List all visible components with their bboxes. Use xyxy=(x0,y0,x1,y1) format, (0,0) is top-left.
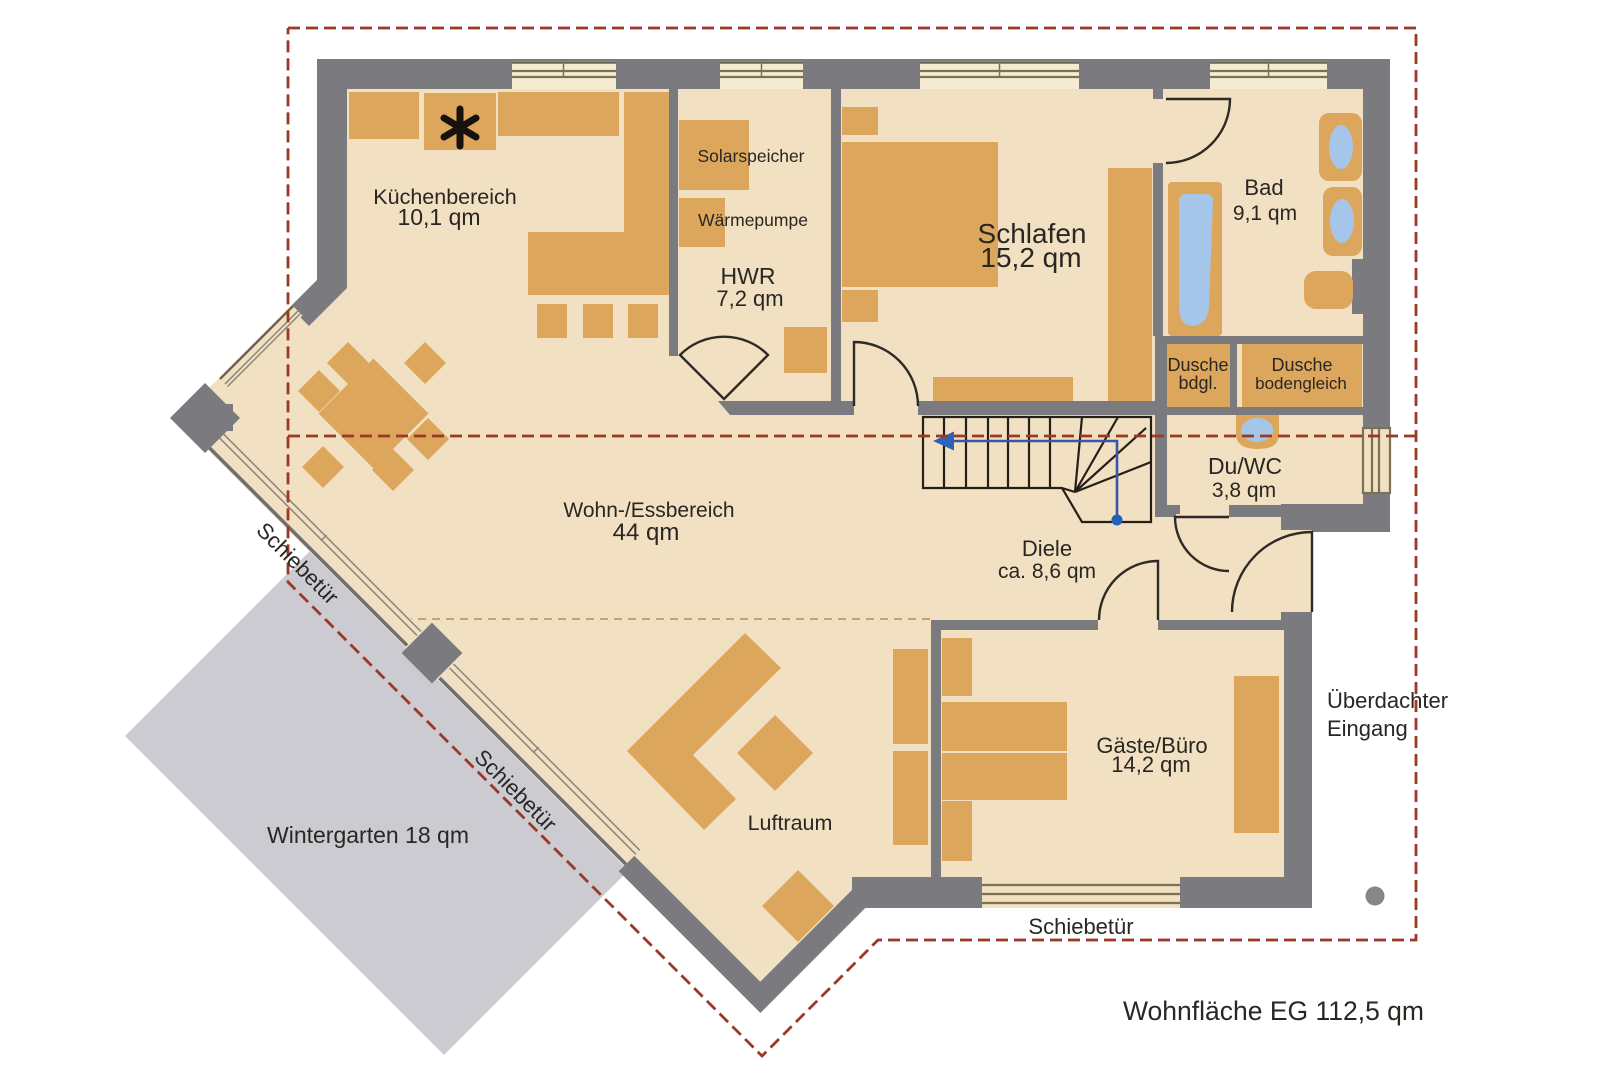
svg-text:44 qm: 44 qm xyxy=(613,519,680,546)
svg-text:10,1 qm: 10,1 qm xyxy=(397,204,480,230)
svg-text:Schiebetür: Schiebetür xyxy=(1028,914,1133,939)
svg-text:Diele: Diele xyxy=(1022,536,1072,561)
svg-text:Dusche: Dusche xyxy=(1271,355,1332,375)
svg-text:7,2 qm: 7,2 qm xyxy=(716,286,783,311)
svg-text:Wohnfläche EG 112,5 qm: Wohnfläche EG 112,5 qm xyxy=(1123,996,1424,1026)
svg-text:9,1 qm: 9,1 qm xyxy=(1233,202,1297,225)
svg-text:bodengleich: bodengleich xyxy=(1255,374,1347,393)
svg-text:bdgl.: bdgl. xyxy=(1178,373,1217,393)
svg-text:Dusche: Dusche xyxy=(1167,355,1228,375)
svg-text:Solarspeicher: Solarspeicher xyxy=(698,146,805,166)
svg-text:15,2 qm: 15,2 qm xyxy=(980,242,1081,273)
svg-text:14,2 qm: 14,2 qm xyxy=(1111,752,1191,777)
svg-text:Überdachter: Überdachter xyxy=(1327,688,1448,713)
svg-text:Du/WC: Du/WC xyxy=(1208,453,1282,479)
svg-text:Wärmepumpe: Wärmepumpe xyxy=(698,210,808,230)
svg-text:3,8 qm: 3,8 qm xyxy=(1212,479,1276,502)
svg-text:Eingang: Eingang xyxy=(1327,716,1408,741)
svg-text:Luftraum: Luftraum xyxy=(748,811,833,835)
svg-text:ca. 8,6 qm: ca. 8,6 qm xyxy=(998,560,1096,583)
svg-text:Bad: Bad xyxy=(1244,175,1283,200)
svg-text:Wintergarten 18 qm: Wintergarten 18 qm xyxy=(267,822,469,848)
